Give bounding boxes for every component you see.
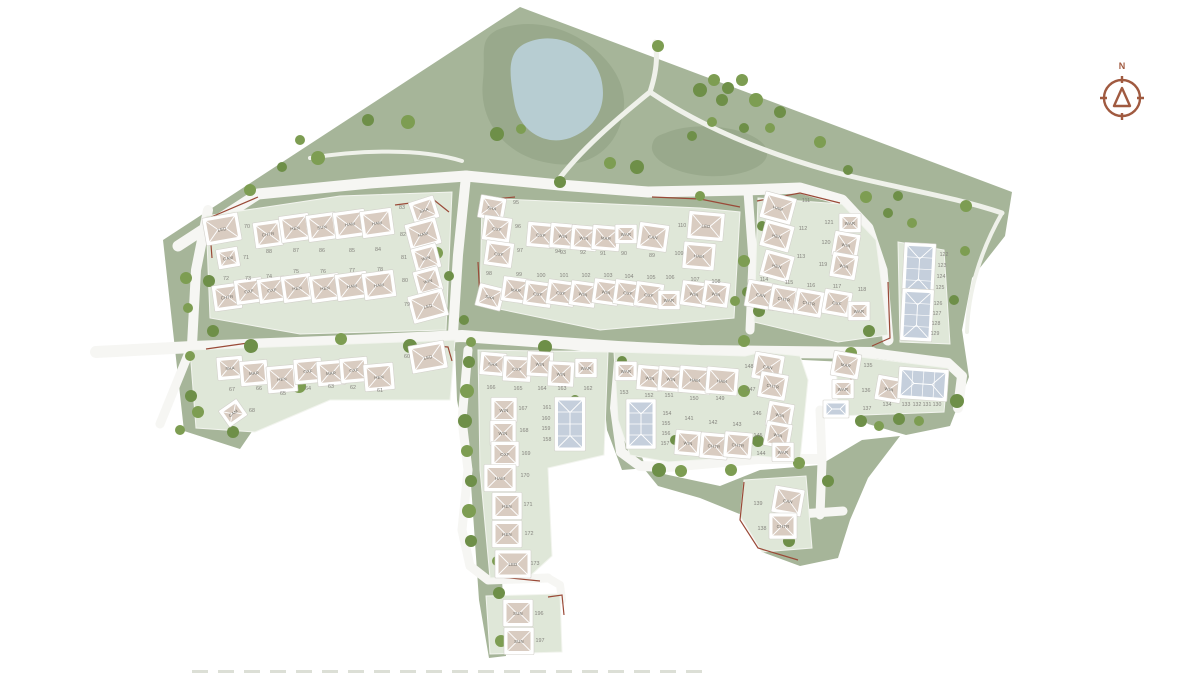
plot-155-number[interactable]: 155 [662, 421, 671, 427]
plot-90-number[interactable]: 90 [621, 251, 627, 257]
plot-103-number[interactable]: 103 [604, 273, 613, 279]
plot-66-number[interactable]: 66 [256, 386, 262, 392]
tree-icon [295, 135, 305, 145]
plot-167-number[interactable]: 167 [519, 406, 528, 412]
plot-70-number[interactable]: 70 [244, 224, 250, 230]
tree-icon [180, 272, 192, 284]
tree-icon [774, 106, 786, 118]
plot-197-number[interactable]: 197 [536, 638, 545, 644]
plot-63-number[interactable]: 63 [328, 384, 334, 390]
house-type-label: WAR [778, 450, 788, 455]
plot-66-house[interactable]: MAR [239, 359, 269, 386]
tree-icon [462, 504, 476, 518]
plot-98-number[interactable]: 98 [486, 271, 492, 277]
plot-119-number[interactable]: 119 [819, 262, 828, 268]
tree-icon [707, 117, 717, 127]
compass-north-label: N [1119, 61, 1126, 71]
tree-icon [883, 208, 893, 218]
plot-79-number[interactable]: 79 [404, 302, 410, 308]
plot-196-house[interactable]: SUN [503, 600, 533, 627]
plot-75-number[interactable]: 75 [293, 269, 299, 275]
tree-icon [863, 325, 875, 337]
plot-121-house[interactable]: WAR [839, 214, 861, 233]
road [820, 410, 822, 515]
plot-115-number[interactable]: 115 [785, 280, 794, 286]
plot-144-house[interactable]: WAR [772, 443, 794, 462]
tree-icon [687, 131, 697, 141]
plot-61-number[interactable]: 61 [377, 388, 383, 394]
tree-icon [907, 218, 917, 228]
plot-99-number[interactable]: 99 [516, 272, 522, 278]
plot-132-number[interactable]: 132 [913, 402, 922, 408]
plot-167-house[interactable]: WIN [491, 398, 517, 423]
plot-64-number[interactable]: 64 [305, 386, 311, 392]
plot-173-number[interactable]: 173 [531, 561, 540, 567]
plot-136-number[interactable]: 136 [862, 388, 871, 394]
house-type-label: WIN [500, 408, 509, 413]
plot-60-number[interactable]: 60 [404, 354, 410, 360]
plot-161-number[interactable]: 161 [543, 405, 552, 411]
plot-159-number[interactable]: 159 [542, 426, 551, 432]
terrace-block[interactable] [626, 399, 656, 449]
plot-169-house[interactable]: OXF [491, 442, 519, 467]
plot-118-house[interactable]: WAR [848, 302, 870, 321]
tree-icon [950, 394, 964, 408]
tree-icon [516, 124, 526, 134]
edge-strip-layer [192, 670, 702, 673]
tree-icon [960, 246, 970, 256]
tree-icon [459, 315, 469, 325]
house-type-label: WAR [664, 298, 674, 303]
tree-icon [693, 83, 707, 97]
house-type-label: WIN [683, 440, 692, 446]
plot-78-house[interactable]: HAM [361, 269, 396, 300]
plot-128-number[interactable]: 128 [932, 321, 941, 327]
house-type-label: WIN [579, 235, 588, 241]
plot-89-number[interactable]: 89 [649, 253, 655, 259]
plot-127-number[interactable]: 127 [933, 311, 942, 317]
tree-icon [277, 162, 287, 172]
plot-71-number[interactable]: 71 [243, 255, 249, 261]
plot-139-number[interactable]: 139 [754, 501, 763, 507]
tree-icon [822, 475, 834, 487]
plot-156-number[interactable]: 156 [662, 431, 671, 437]
plot-107-number[interactable]: 107 [691, 277, 700, 283]
plot-83-number[interactable]: 83 [399, 205, 405, 211]
plot-154-number[interactable]: 154 [663, 411, 672, 417]
plot-135-number[interactable]: 135 [864, 363, 873, 369]
plot-77-number[interactable]: 77 [349, 268, 355, 274]
tree-icon [725, 464, 737, 476]
plot-70-house[interactable]: LED [202, 212, 242, 246]
tree-icon [362, 114, 374, 126]
plot-110-number[interactable]: 110 [678, 223, 687, 229]
plot-119-house[interactable]: WIN [829, 251, 859, 280]
plot-152-number[interactable]: 152 [645, 393, 654, 399]
tree-icon [730, 296, 740, 306]
tree-icon [465, 535, 477, 547]
house-type-label: HAM [495, 476, 505, 481]
plot-141-number[interactable]: 141 [685, 416, 694, 422]
plot-164-number[interactable]: 164 [538, 386, 547, 392]
plot-134-number[interactable]: 134 [883, 402, 892, 408]
plot-146-number[interactable]: 146 [753, 411, 762, 417]
plot-116-number[interactable]: 116 [807, 283, 816, 289]
tree-icon [652, 463, 666, 477]
tree-icon [630, 160, 644, 174]
plot-136-house[interactable]: WAR [832, 380, 854, 399]
plot-170-house[interactable]: HAM [484, 465, 516, 492]
plot-60-house[interactable]: LED [408, 340, 448, 374]
tree-icon [675, 465, 687, 477]
plot-68-number[interactable]: 68 [249, 408, 255, 414]
tree-icon [914, 416, 924, 426]
tree-icon [708, 74, 720, 86]
tree-icon [465, 475, 477, 487]
plot-173-house[interactable]: LED [495, 550, 531, 578]
plot-71-house[interactable]: CAM [215, 246, 240, 270]
terrace-block[interactable] [900, 288, 935, 342]
house-type-label: HAM [690, 377, 701, 383]
house-type-label: OXF [512, 367, 522, 372]
plot-108-number[interactable]: 108 [712, 279, 721, 285]
plot-97-house[interactable]: OXF [483, 240, 514, 269]
plot-95-number[interactable]: 95 [513, 200, 519, 206]
tree-icon [466, 337, 476, 347]
tree-icon [311, 151, 325, 165]
plot-137-number[interactable]: 137 [863, 406, 872, 412]
plot-110-house[interactable]: LED [687, 210, 725, 241]
house-type-label: HAM [717, 378, 728, 384]
house-type-label: LED [509, 562, 518, 567]
plot-139-house[interactable]: CAN [771, 485, 805, 517]
tree-icon [695, 191, 705, 201]
plot-101-number[interactable]: 101 [560, 273, 569, 279]
plot-157-number[interactable]: 157 [661, 441, 670, 447]
house-type-label: WIN [645, 375, 654, 381]
plot-65-house[interactable]: HEN [266, 364, 298, 394]
plot-163-house[interactable]: WIN [547, 361, 574, 387]
plot-62-number[interactable]: 62 [350, 385, 356, 391]
plot-196-number[interactable]: 196 [535, 611, 544, 617]
plot-109-number[interactable]: 109 [675, 251, 684, 257]
plot-143-number[interactable]: 143 [733, 422, 742, 428]
plot-133-number[interactable]: 133 [902, 402, 911, 408]
plot-124-number[interactable]: 124 [937, 274, 946, 280]
plot-81-number[interactable]: 81 [401, 255, 407, 261]
tree-icon [493, 587, 505, 599]
house-type-label: OXF [303, 368, 313, 374]
terrace-block[interactable] [555, 397, 586, 451]
tree-icon [554, 176, 566, 188]
house-type-label: SHA [488, 361, 498, 367]
tree-icon [960, 200, 972, 212]
plot-91-number[interactable]: 91 [600, 251, 606, 257]
house-type-label: OXF [349, 367, 359, 373]
plot-109-house[interactable]: HAM [682, 241, 716, 271]
plot-123-number[interactable]: 123 [938, 263, 947, 269]
house-type-label: HAM [694, 253, 705, 259]
plot-129-number[interactable]: 129 [931, 331, 940, 337]
tree-icon [444, 271, 454, 281]
plot-89-house[interactable]: CAN [636, 222, 669, 253]
tree-icon [203, 275, 215, 287]
house-type-label: WAR [845, 221, 855, 226]
plot-131-number[interactable]: 131 [923, 402, 932, 408]
tree-icon [893, 413, 905, 425]
house-type-label: WAR [621, 369, 631, 374]
house-type-label: MAR [601, 235, 612, 241]
plot-126-number[interactable]: 126 [934, 301, 943, 307]
tree-icon [738, 255, 750, 267]
plot-120-number[interactable]: 120 [822, 240, 831, 246]
house-type-label: OXF [500, 452, 510, 457]
house-type-label: SHA [225, 365, 235, 371]
house-type-label: OXF [536, 232, 546, 238]
plot-112-number[interactable]: 112 [799, 226, 808, 232]
plot-171-number[interactable]: 171 [524, 502, 533, 508]
house-type-label: MAR [249, 370, 260, 376]
plot-117-number[interactable]: 117 [833, 284, 842, 290]
tree-icon [490, 127, 504, 141]
plot-90-house[interactable]: WAR [615, 225, 637, 244]
plot-93-number[interactable]: 93 [560, 250, 566, 256]
plot-85-number[interactable]: 85 [349, 248, 355, 254]
compass-ring [1104, 80, 1140, 116]
house-type-label: SUN [514, 639, 524, 644]
tree-icon [185, 351, 195, 361]
plot-106-house[interactable]: WAR [658, 291, 680, 310]
plot-145-number[interactable]: 145 [754, 433, 763, 439]
tree-icon [460, 384, 474, 398]
plot-163-number[interactable]: 163 [558, 386, 567, 392]
plot-138-house[interactable]: CHTR [769, 513, 797, 539]
tree-icon [736, 74, 748, 86]
plot-100-number[interactable]: 100 [537, 273, 546, 279]
plot-143-house[interactable]: CHTR [723, 431, 753, 459]
house-type-label: CHTR [777, 524, 790, 529]
house-type-label: WIN [666, 376, 675, 382]
house-type-label: SUN [513, 611, 523, 616]
house-type-label: WIN [499, 431, 508, 436]
plot-84-house[interactable]: HAM [359, 207, 394, 238]
plot-170-number[interactable]: 170 [521, 473, 530, 479]
tree-icon [739, 123, 749, 133]
compass-needle-icon [1114, 88, 1130, 106]
tree-icon [722, 82, 734, 94]
plot-78-number[interactable]: 78 [377, 267, 383, 273]
plot-138-number[interactable]: 138 [758, 526, 767, 532]
plot-96-number[interactable]: 96 [515, 224, 521, 230]
plot-162-number[interactable]: 162 [584, 386, 593, 392]
tree-icon [855, 415, 867, 427]
plot-130-number[interactable]: 130 [933, 402, 942, 408]
tree-icon [765, 123, 775, 133]
plot-148-number[interactable]: 148 [745, 364, 754, 370]
house-type-label: WAR [854, 309, 864, 314]
house-type-label: MAR [326, 370, 337, 376]
house-type-label: HEN [502, 504, 512, 509]
tree-icon [860, 191, 872, 203]
site-plan-map: LEDCAMCHTROXFOXFHENHENHAMHAMCHTRHENSUNHA… [0, 0, 1200, 674]
tree-icon [738, 335, 750, 347]
tree-icon [244, 184, 256, 196]
house-type-label: WAR [621, 232, 631, 237]
tree-icon [814, 136, 826, 148]
plot-147-number[interactable]: 147 [747, 387, 756, 393]
house-type-label: WIN [535, 362, 544, 367]
plot-73-number[interactable]: 73 [245, 276, 251, 282]
plot-172-number[interactable]: 172 [525, 531, 534, 537]
plot-88-number[interactable]: 88 [266, 249, 272, 255]
tree-icon [893, 191, 903, 201]
tree-icon [185, 390, 197, 402]
plot-171-house[interactable]: HEN [492, 493, 522, 520]
terrace-block[interactable] [823, 400, 849, 418]
plot-118-number[interactable]: 118 [858, 287, 867, 293]
plot-160-number[interactable]: 160 [542, 416, 551, 422]
plot-97-number[interactable]: 97 [517, 248, 523, 254]
tree-icon [604, 157, 616, 169]
plot-169-number[interactable]: 169 [522, 451, 531, 457]
plot-122-number[interactable]: 122 [940, 252, 949, 258]
plot-67-number[interactable]: 67 [229, 387, 235, 393]
plot-142-number[interactable]: 142 [709, 420, 718, 426]
plot-116-house[interactable]: CHTR [793, 288, 825, 318]
tree-icon [458, 414, 472, 428]
tree-icon [183, 303, 193, 313]
plot-172-house[interactable]: HEN [492, 521, 522, 548]
plot-166-number[interactable]: 166 [487, 385, 496, 391]
terrace-block[interactable] [902, 242, 937, 296]
plot-158-number[interactable]: 158 [543, 437, 552, 443]
house-type-label: HEN [374, 374, 384, 380]
plot-147-house[interactable]: CHTR [757, 371, 789, 401]
tree-icon [192, 406, 204, 418]
plot-87-number[interactable]: 87 [293, 248, 299, 254]
house-type-label: HEN [277, 376, 287, 382]
plot-80-number[interactable]: 80 [402, 278, 408, 284]
tree-icon [244, 339, 258, 353]
plot-102-number[interactable]: 102 [582, 273, 591, 279]
terrace-block[interactable] [897, 366, 949, 401]
tree-icon [401, 115, 415, 129]
plot-141-house[interactable]: WIN [674, 429, 702, 456]
tree-icon [175, 425, 185, 435]
plot-149-house[interactable]: HAM [705, 366, 739, 396]
plot-144-number[interactable]: 144 [757, 451, 766, 457]
plot-86-number[interactable]: 86 [319, 248, 325, 254]
plot-74-number[interactable]: 74 [266, 274, 272, 280]
plot-197-house[interactable]: SUN [504, 628, 534, 655]
plot-111-number[interactable]: 111 [802, 198, 810, 204]
house-type-label: WIN [556, 372, 565, 377]
plot-106-number[interactable]: 106 [666, 275, 675, 281]
tree-icon [227, 426, 239, 438]
plot-150-number[interactable]: 150 [690, 396, 699, 402]
plot-151-number[interactable]: 151 [665, 393, 674, 399]
house-type-label: LED [701, 223, 710, 229]
plot-121-number[interactable]: 121 [825, 220, 834, 226]
plot-168-number[interactable]: 168 [520, 428, 529, 434]
plot-135-house[interactable]: MAR [830, 350, 862, 379]
tree-icon [716, 94, 728, 106]
plot-92-number[interactable]: 92 [580, 250, 586, 256]
plot-153-number[interactable]: 153 [620, 390, 629, 396]
plot-153-house[interactable]: WAR [615, 362, 637, 381]
tree-icon [463, 356, 475, 368]
plot-82-number[interactable]: 82 [400, 232, 406, 238]
compass-ticks [1100, 76, 1144, 120]
house-type-label: HEN [502, 532, 512, 537]
plot-72-number[interactable]: 72 [223, 276, 229, 282]
plot-165-number[interactable]: 165 [514, 386, 523, 392]
tree-icon [335, 333, 347, 345]
plot-84-number[interactable]: 84 [375, 247, 381, 253]
house-type-label: WIN [558, 233, 567, 239]
house-type-label: WAR [581, 366, 591, 371]
plot-76-number[interactable]: 76 [320, 269, 326, 275]
plot-96-house[interactable]: OXF [481, 215, 512, 244]
site-plan-canvas: LEDCAMCHTROXFOXFHENHENHAMHAMCHTRHENSUNHA… [0, 0, 1200, 674]
plot-65-number[interactable]: 65 [280, 391, 286, 397]
tree-icon [749, 93, 763, 107]
tree-icon [652, 40, 664, 52]
plot-104-number[interactable]: 104 [625, 274, 634, 280]
compass: N [1092, 58, 1152, 128]
plot-114-number[interactable]: 114 [760, 277, 769, 283]
plot-125-number[interactable]: 125 [936, 285, 945, 291]
tree-icon [874, 421, 884, 431]
tree-icon [843, 165, 853, 175]
plot-162-house[interactable]: WAR [575, 359, 597, 378]
tree-icon [207, 325, 219, 337]
house-type-label: WAR [838, 387, 848, 392]
plot-105-number[interactable]: 105 [647, 275, 656, 281]
tree-icon [793, 457, 805, 469]
plot-149-number[interactable]: 149 [716, 396, 725, 402]
plot-113-number[interactable]: 113 [797, 254, 806, 260]
tree-icon [461, 445, 473, 457]
tree-icon [949, 295, 959, 305]
